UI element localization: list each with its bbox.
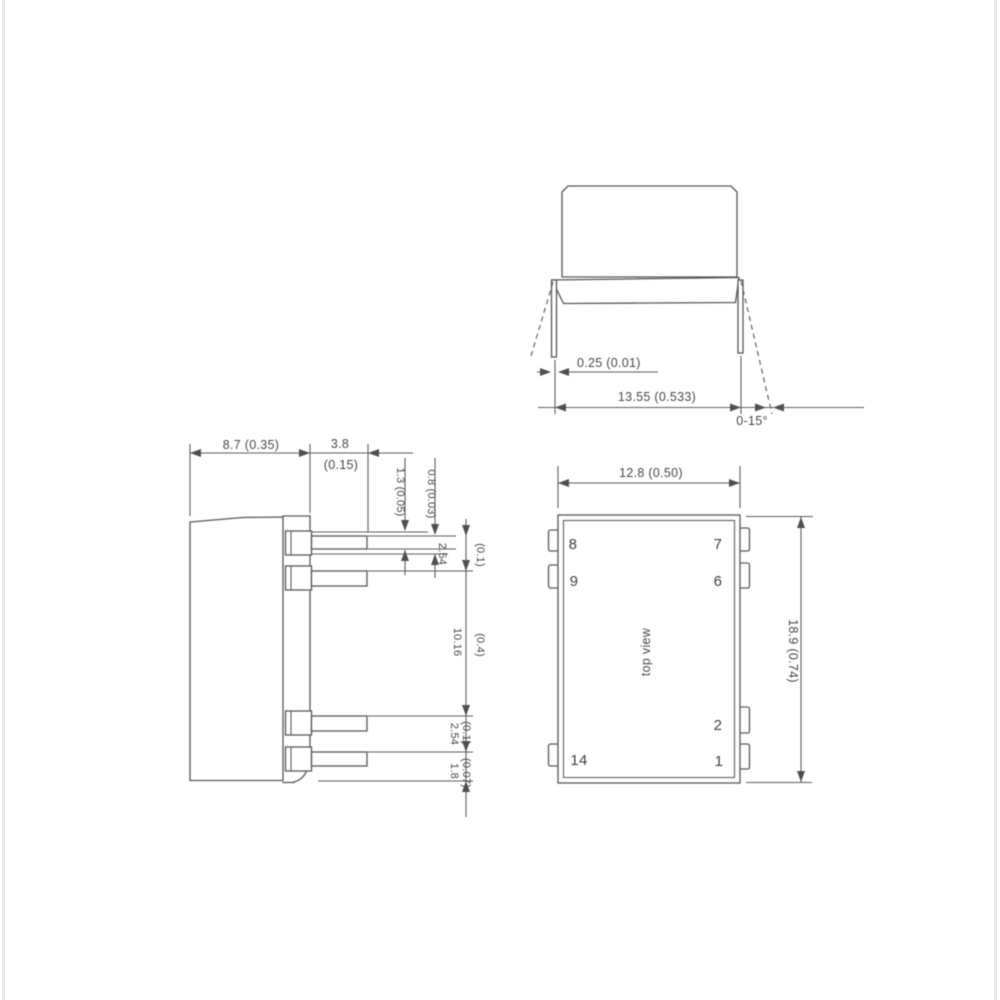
pin-pad — [549, 744, 559, 766]
arrowhead — [555, 404, 566, 412]
arrowhead — [729, 479, 740, 487]
dim-pitch-bottom-mm: 2.54 — [448, 723, 460, 745]
side-view: 8.7 (0.35) 3.8 (0.15) 1.3 (0.05) 0.8 (0.… — [190, 437, 486, 817]
top-view: 8 9 7 6 2 1 14 top view 12.8 (0.50) 18.9… — [549, 466, 814, 783]
dim-body-depth-label: 8.7 (0.35) — [223, 438, 280, 452]
pin-pad — [740, 563, 750, 588]
arrowhead — [190, 449, 201, 457]
side-pin-3 — [312, 716, 368, 731]
arrowhead — [401, 550, 409, 561]
dim-pin-length-in: (0.15) — [324, 458, 358, 472]
dim-edge-offset-in: (0.07) — [460, 758, 472, 788]
arrowhead — [558, 479, 569, 487]
dim-bend-angle-label: 0-15° — [736, 414, 768, 428]
side-body-outline — [190, 517, 283, 781]
dim-pin-length-mm: 3.8 — [331, 437, 349, 451]
dim-pitch-bottom-in: (0.1) — [460, 721, 472, 745]
dim-standoff-a-label: 1.3 (0.05) — [394, 467, 406, 516]
pin-shoulder — [286, 711, 312, 735]
arrowhead — [431, 524, 439, 535]
arrowhead — [755, 404, 766, 412]
dim-pitch-top-in: (0.1) — [474, 543, 486, 567]
arrowhead — [462, 705, 470, 716]
front-pin-left — [552, 280, 557, 357]
arrowhead — [368, 449, 379, 457]
pin-pad — [740, 707, 750, 733]
pin-label-14: 14 — [570, 752, 587, 769]
pin-pad — [740, 528, 750, 551]
dim-lead-span-label: 13.55 (0.533) — [618, 390, 696, 404]
arrowhead — [773, 404, 784, 412]
pin-shoulder — [286, 531, 312, 555]
arrowhead — [730, 404, 741, 412]
top-view-label: top view — [639, 627, 653, 676]
pin-label-6: 6 — [714, 573, 723, 590]
arrowhead — [299, 449, 310, 457]
arrowhead — [558, 368, 569, 376]
pin-shoulder — [286, 747, 312, 771]
arrowhead — [462, 525, 470, 536]
dim-body-length-label: 18.9 (0.74) — [786, 619, 800, 683]
dim-row-spacing-in: (0.4) — [474, 633, 486, 657]
pin-label-2: 2 — [714, 717, 723, 734]
front-view: 0.25 (0.01) 13.55 (0.533) 0-15° — [531, 186, 864, 428]
bent-lead-left-dashed — [531, 282, 553, 356]
arrowhead — [462, 560, 470, 571]
side-pin-2 — [312, 571, 368, 586]
arrowhead — [401, 520, 409, 531]
dim-body-width-label: 12.8 (0.50) — [619, 466, 683, 480]
pin-label-7: 7 — [714, 536, 723, 553]
dim-pitch-top-mm: 2.54 — [436, 543, 448, 565]
mechanical-drawing: 0.25 (0.01) 13.55 (0.533) 0-15° — [0, 0, 1000, 1000]
pin-shoulder — [286, 566, 312, 590]
dim-row-spacing-mm: 10.16 — [451, 628, 463, 657]
pin-pad — [549, 565, 559, 588]
pin-label-1: 1 — [715, 753, 724, 770]
bent-lead-right-dashed — [741, 281, 772, 414]
dim-standoff-b-label: 0.8 (0.03) — [425, 469, 437, 518]
pin-pad — [549, 530, 559, 551]
dim-pin-thickness-label: 0.25 (0.01) — [577, 356, 641, 370]
side-pin-4 — [312, 752, 368, 766]
front-body-outline — [562, 186, 737, 277]
front-pin-right — [738, 280, 743, 353]
dim-edge-offset-mm: 1.8 — [448, 763, 460, 779]
side-pin-1 — [312, 536, 368, 549]
arrowhead — [797, 517, 805, 528]
pin-label-8: 8 — [569, 536, 578, 553]
datasheet-drawing-page: 0.25 (0.01) 13.55 (0.533) 0-15° — [0, 0, 1000, 1000]
arrowhead — [540, 368, 551, 376]
pin-label-9: 9 — [570, 573, 579, 590]
pin-pad — [740, 744, 750, 769]
arrowhead — [797, 771, 805, 782]
front-flange — [552, 278, 739, 304]
